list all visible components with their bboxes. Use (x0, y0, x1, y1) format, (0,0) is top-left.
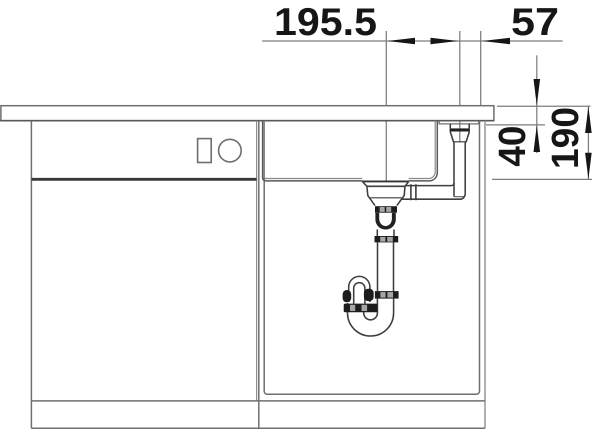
svg-text:190: 190 (545, 107, 587, 169)
svg-text:57: 57 (511, 1, 559, 44)
svg-text:40: 40 (492, 126, 534, 167)
svg-text:195.5: 195.5 (274, 1, 377, 44)
